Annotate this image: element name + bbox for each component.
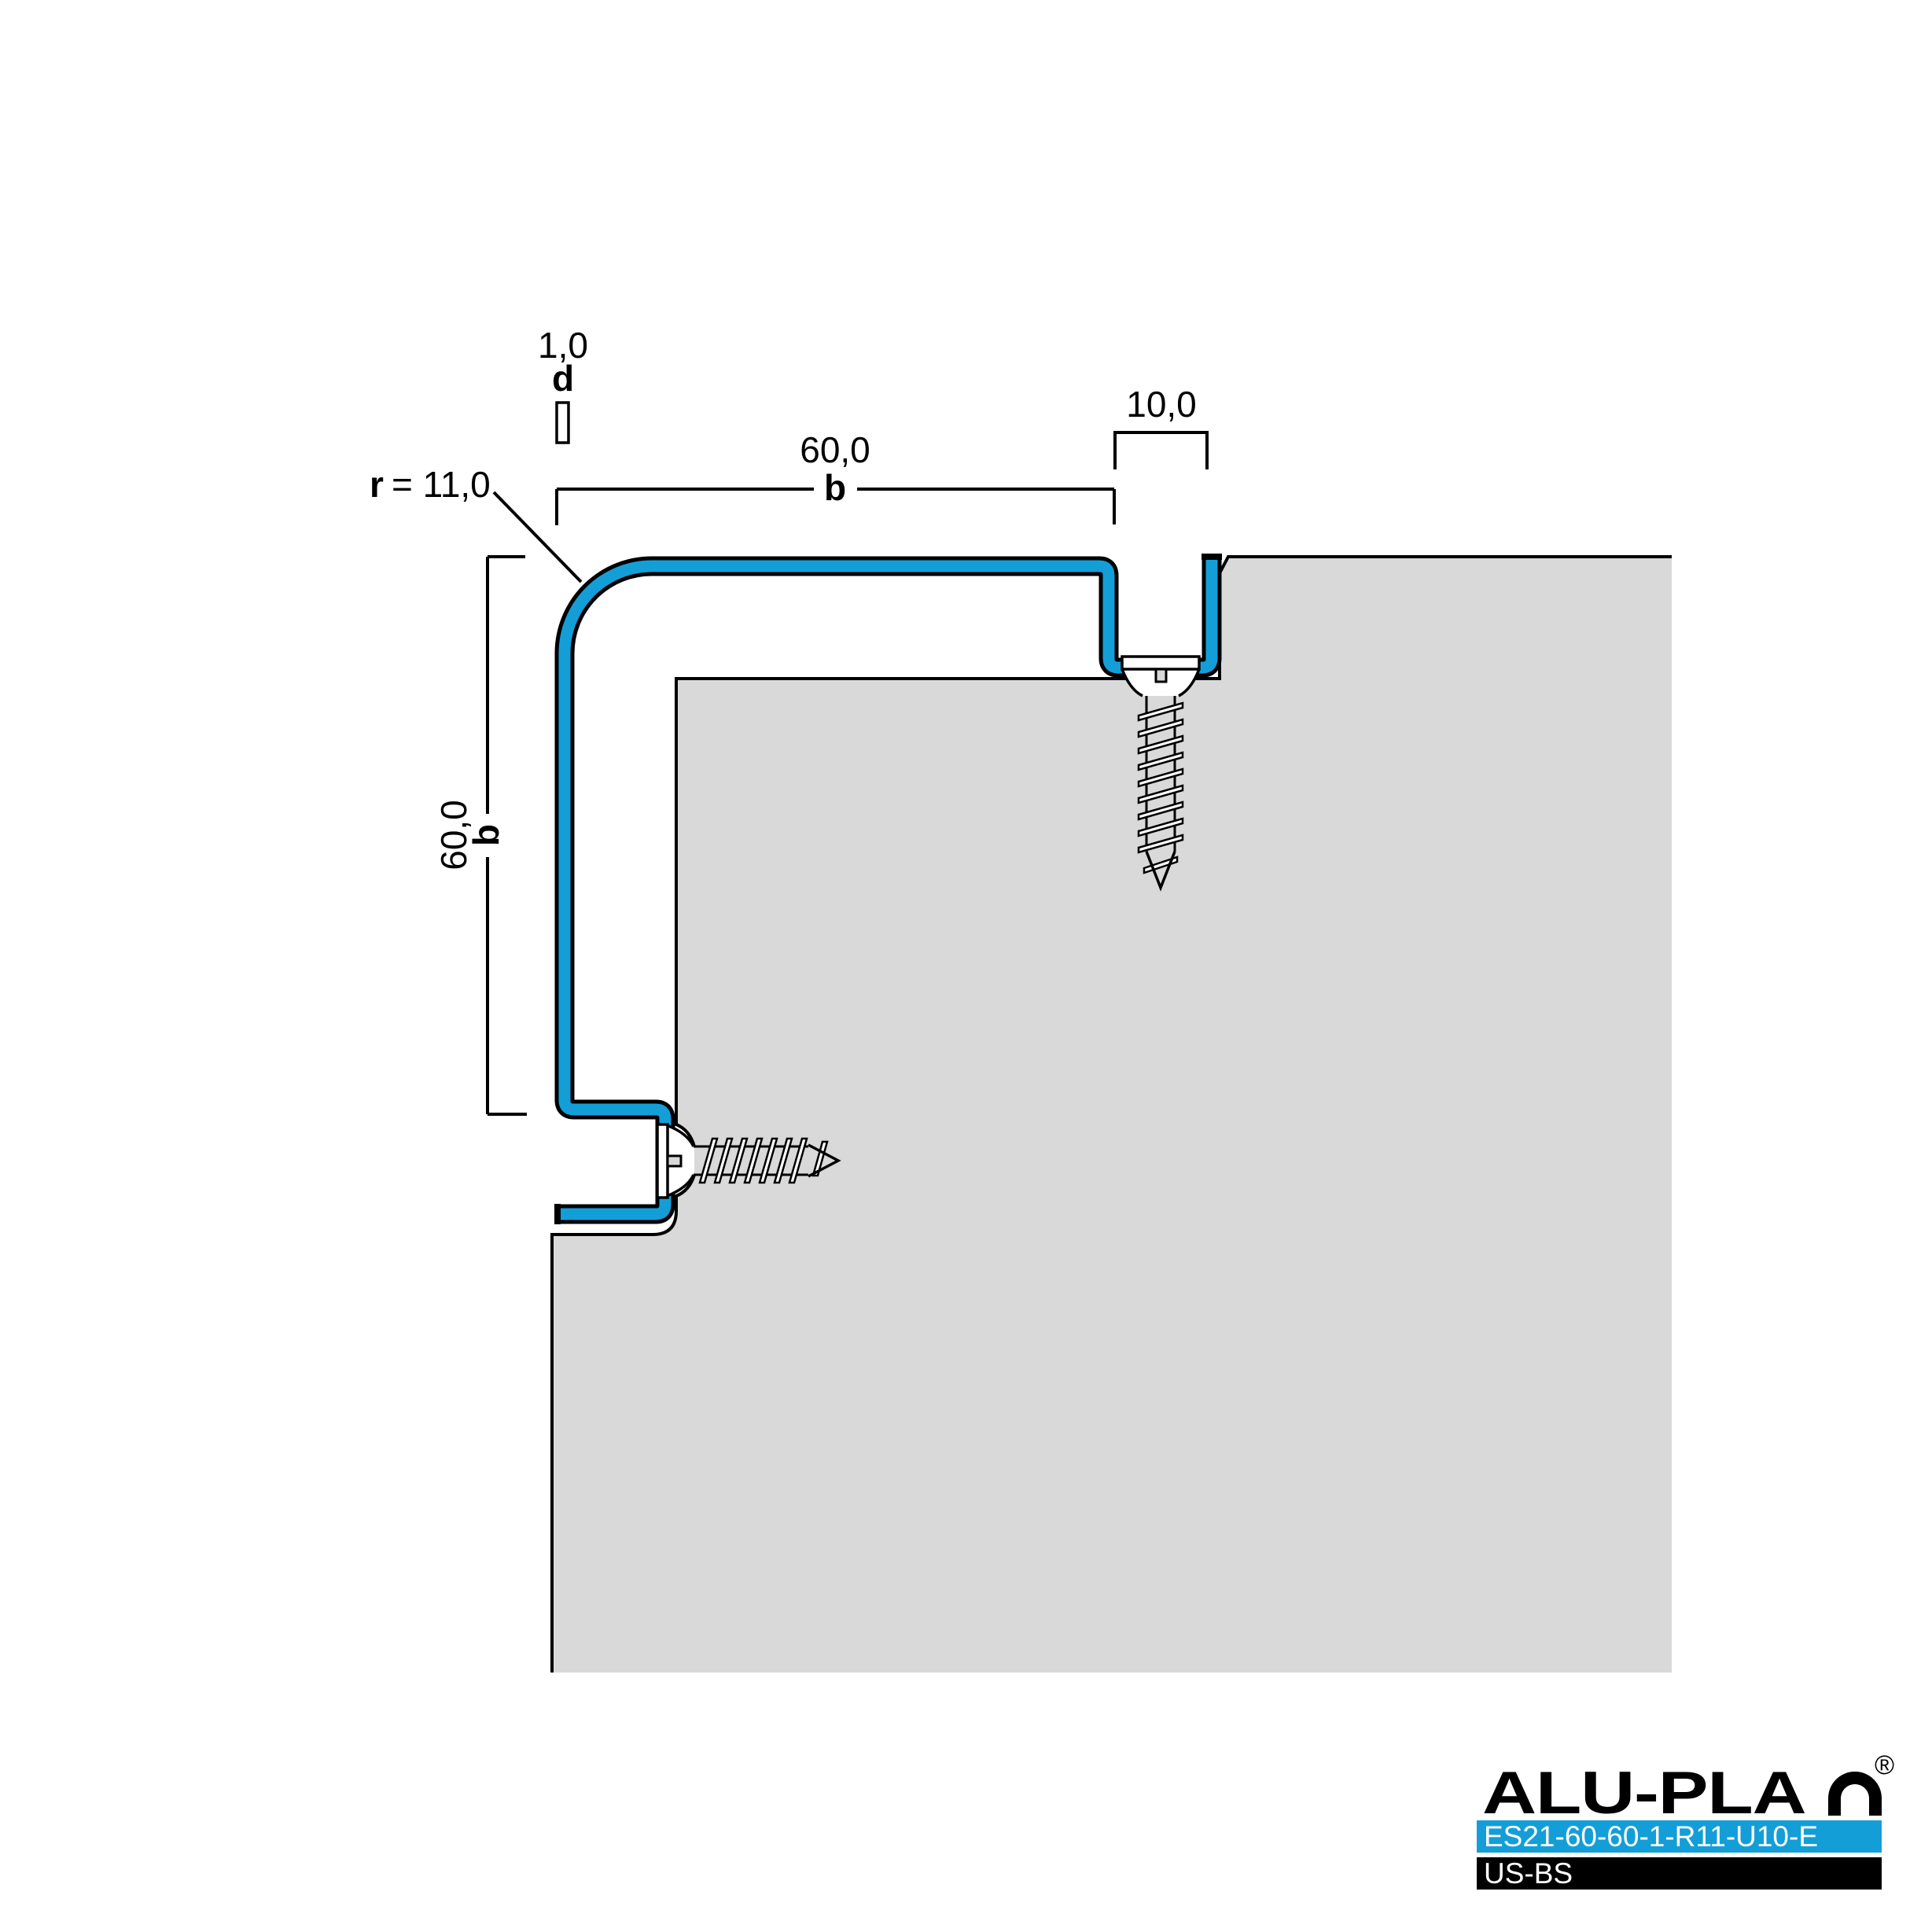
- screw-horizontal-drive-slot: [668, 1156, 681, 1166]
- brand-wordmark: ALU-PLA: [1482, 1764, 1805, 1823]
- type-code-bar: US-BS: [1477, 1857, 1882, 1890]
- thickness-symbol-label: d: [552, 358, 574, 399]
- product-code-bar: ES21-60-60-1-R11-U10-E: [1477, 1820, 1882, 1853]
- profile-foot-end-cap: [554, 1204, 561, 1224]
- radius-leader-line: [494, 492, 581, 582]
- radius-value-label: = 11,0: [392, 464, 491, 505]
- profile-channel-end-cap: [1202, 554, 1222, 560]
- type-code: US-BS: [1484, 1857, 1573, 1890]
- width-symbol-label: b: [824, 467, 846, 508]
- height-symbol-label: b: [466, 824, 506, 846]
- technical-drawing: 1,0 d 60,0 b 60,0 b 10,0 r = 11,0: [0, 0, 1932, 1932]
- dim-leg-bracket: [1115, 432, 1207, 469]
- substrate-body: [552, 557, 1672, 1673]
- thickness-indicator: [557, 403, 569, 443]
- radius-symbol-label: r: [370, 464, 384, 505]
- screw-horizontal-head: [657, 1124, 668, 1198]
- substrate: [552, 557, 1672, 1673]
- registered-trademark-icon: ®: [1875, 1752, 1894, 1779]
- leg-value-label: 10,0: [1126, 384, 1197, 425]
- drawing-canvas: 1,0 d 60,0 b 60,0 b 10,0 r = 11,0 ALU-PL…: [0, 0, 1932, 1932]
- screw-vertical-head: [1122, 657, 1199, 669]
- product-code: ES21-60-60-1-R11-U10-E: [1484, 1820, 1818, 1853]
- width-value-label: 60,0: [800, 429, 870, 470]
- screw-vertical-drive-slot: [1156, 669, 1166, 682]
